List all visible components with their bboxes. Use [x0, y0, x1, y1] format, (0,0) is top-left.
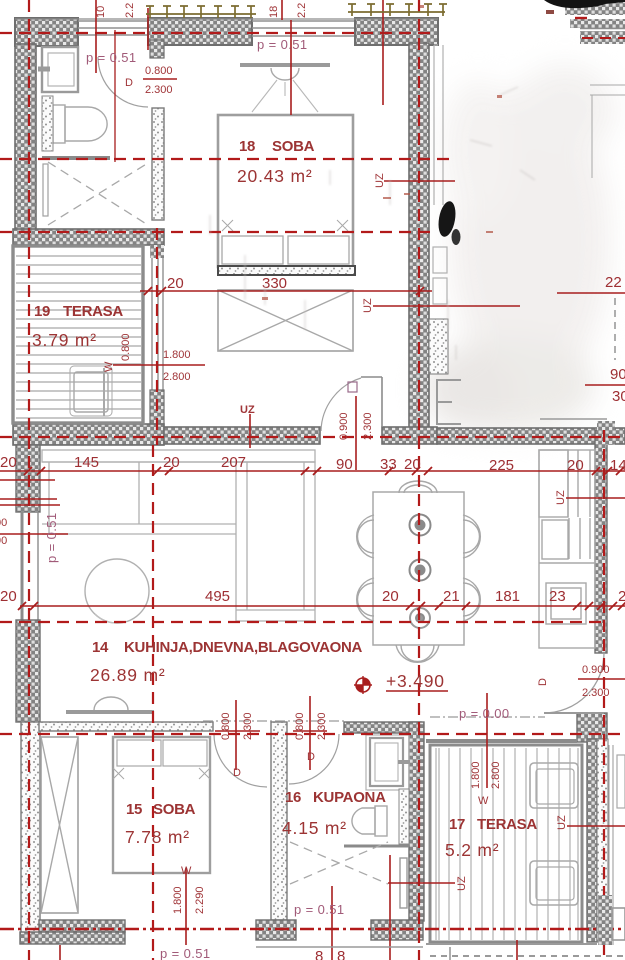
svg-text:2.300: 2.300 — [242, 712, 254, 740]
svg-text:00: 00 — [0, 517, 7, 529]
svg-text:2.2: 2.2 — [124, 3, 136, 18]
svg-text:UZ: UZ — [374, 173, 386, 188]
svg-text:W: W — [478, 795, 489, 807]
svg-text:14: 14 — [92, 639, 109, 656]
svg-text:330: 330 — [262, 275, 287, 292]
svg-text:D: D — [307, 751, 315, 763]
svg-text:90: 90 — [0, 535, 7, 547]
svg-text:p = 0.51: p = 0.51 — [44, 512, 59, 563]
svg-text:495: 495 — [205, 588, 230, 605]
svg-text:20: 20 — [0, 588, 17, 605]
svg-text:2.800: 2.800 — [163, 371, 191, 383]
svg-text:20.43 m²: 20.43 m² — [237, 166, 312, 186]
svg-text:15: 15 — [126, 801, 142, 818]
svg-text:UZ: UZ — [556, 815, 568, 830]
svg-text:KUPAONA: KUPAONA — [313, 789, 386, 806]
svg-text:20: 20 — [567, 457, 584, 474]
svg-text:2: 2 — [618, 588, 625, 605]
svg-text:7.78 m²: 7.78 m² — [125, 827, 190, 847]
svg-text:2.300: 2.300 — [362, 412, 374, 440]
svg-text:20: 20 — [0, 454, 17, 471]
svg-text:1.800: 1.800 — [172, 886, 184, 914]
svg-text:4.15 m²: 4.15 m² — [282, 818, 347, 838]
svg-text:10: 10 — [95, 6, 107, 18]
svg-text:1.800: 1.800 — [470, 761, 482, 789]
svg-text:5.2 m²: 5.2 m² — [445, 840, 499, 860]
svg-text:D: D — [233, 767, 241, 779]
svg-text:3.79 m²: 3.79 m² — [32, 330, 97, 350]
svg-text:KUHINJA,DNEVNA,BLAGOVAONA: KUHINJA,DNEVNA,BLAGOVAONA — [124, 639, 363, 656]
svg-text:p = 0.51: p = 0.51 — [294, 902, 345, 917]
svg-text:26.89 m²: 26.89 m² — [90, 665, 165, 685]
svg-text:21: 21 — [443, 588, 460, 605]
svg-text:90: 90 — [336, 456, 353, 473]
svg-text:0.800: 0.800 — [294, 712, 306, 740]
svg-text:145: 145 — [74, 454, 99, 471]
svg-text:D: D — [537, 678, 549, 686]
svg-text:UZ: UZ — [555, 490, 567, 505]
svg-text:90: 90 — [610, 366, 625, 383]
svg-text:18: 18 — [239, 138, 255, 155]
svg-text:p = 0.51: p = 0.51 — [257, 37, 308, 52]
svg-text:UZ: UZ — [240, 404, 255, 416]
svg-text:18: 18 — [268, 6, 280, 18]
svg-text:0.900: 0.900 — [582, 664, 610, 676]
svg-text:181: 181 — [495, 588, 520, 605]
svg-text:UZ: UZ — [362, 298, 374, 313]
svg-text:W: W — [181, 865, 192, 877]
svg-text:0.800: 0.800 — [145, 65, 173, 77]
svg-text:2.300: 2.300 — [145, 84, 173, 96]
svg-text:p = 0.00: p = 0.00 — [459, 706, 510, 721]
svg-text:20: 20 — [382, 588, 399, 605]
svg-text:8: 8 — [337, 948, 345, 960]
svg-text:2.290: 2.290 — [194, 886, 206, 914]
svg-text:17: 17 — [449, 816, 465, 833]
svg-text:1.800: 1.800 — [163, 349, 191, 361]
svg-text:2.300: 2.300 — [582, 687, 610, 699]
svg-text:TERASA: TERASA — [63, 303, 123, 320]
svg-text:2.800: 2.800 — [490, 761, 502, 789]
svg-text:22: 22 — [605, 274, 622, 291]
svg-text:8: 8 — [315, 948, 323, 960]
svg-text:W: W — [103, 361, 115, 372]
svg-text:SOBA: SOBA — [153, 801, 196, 818]
svg-text:0.900: 0.900 — [338, 412, 350, 440]
svg-text:20: 20 — [163, 454, 180, 471]
svg-text:2.300: 2.300 — [316, 712, 328, 740]
svg-text:23: 23 — [549, 588, 566, 605]
svg-text:0.800: 0.800 — [220, 712, 232, 740]
svg-text:TERASA: TERASA — [477, 816, 537, 833]
svg-text:UZ: UZ — [456, 876, 468, 891]
svg-text:207: 207 — [221, 454, 246, 471]
svg-text:0.800: 0.800 — [120, 333, 132, 361]
svg-text:SOBA: SOBA — [272, 138, 315, 155]
svg-text:19: 19 — [34, 303, 50, 320]
svg-text:33: 33 — [380, 456, 397, 473]
svg-text:D: D — [125, 77, 133, 89]
svg-text:+3.490: +3.490 — [386, 671, 445, 691]
svg-text:20: 20 — [167, 275, 184, 292]
svg-text:p = 0.51: p = 0.51 — [160, 946, 211, 960]
svg-text:2.2: 2.2 — [296, 3, 308, 18]
svg-text:16: 16 — [285, 789, 301, 806]
svg-text:p = 0.51: p = 0.51 — [86, 50, 137, 65]
svg-text:20: 20 — [404, 456, 421, 473]
svg-text:14: 14 — [610, 457, 625, 474]
svg-text:30: 30 — [612, 388, 625, 405]
svg-text:225: 225 — [489, 457, 514, 474]
